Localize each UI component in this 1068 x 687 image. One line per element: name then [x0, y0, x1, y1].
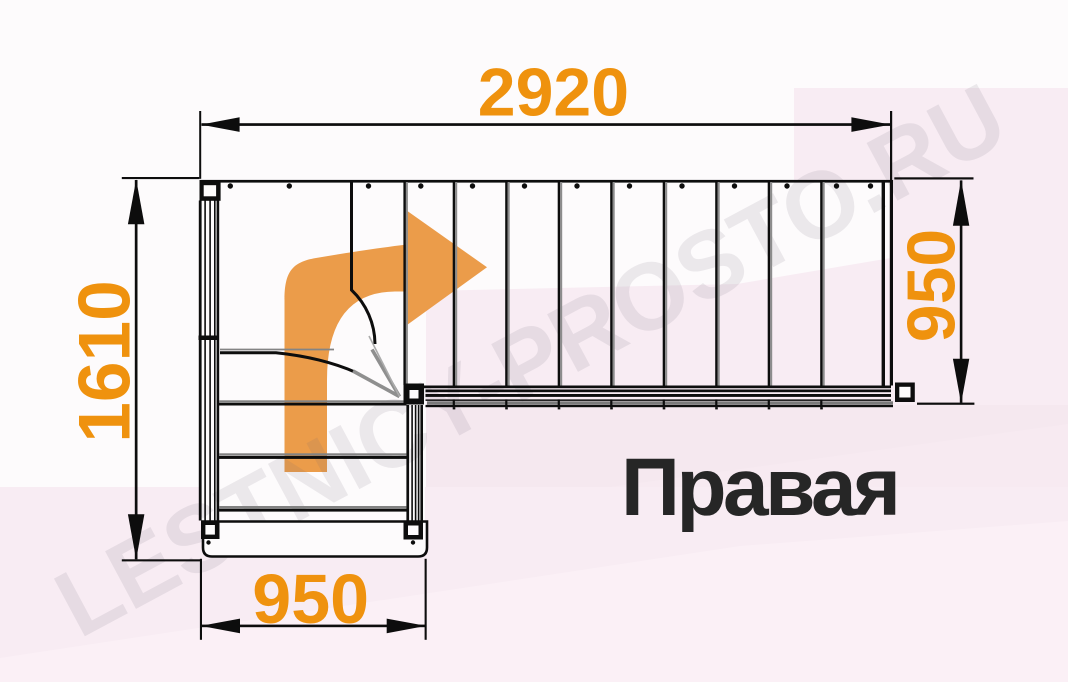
svg-text:950: 950: [252, 560, 369, 638]
svg-text:950: 950: [894, 229, 970, 342]
svg-text:Правая: Правая: [621, 442, 897, 533]
svg-text:2920: 2920: [478, 55, 629, 131]
svg-text:1610: 1610: [65, 280, 146, 442]
